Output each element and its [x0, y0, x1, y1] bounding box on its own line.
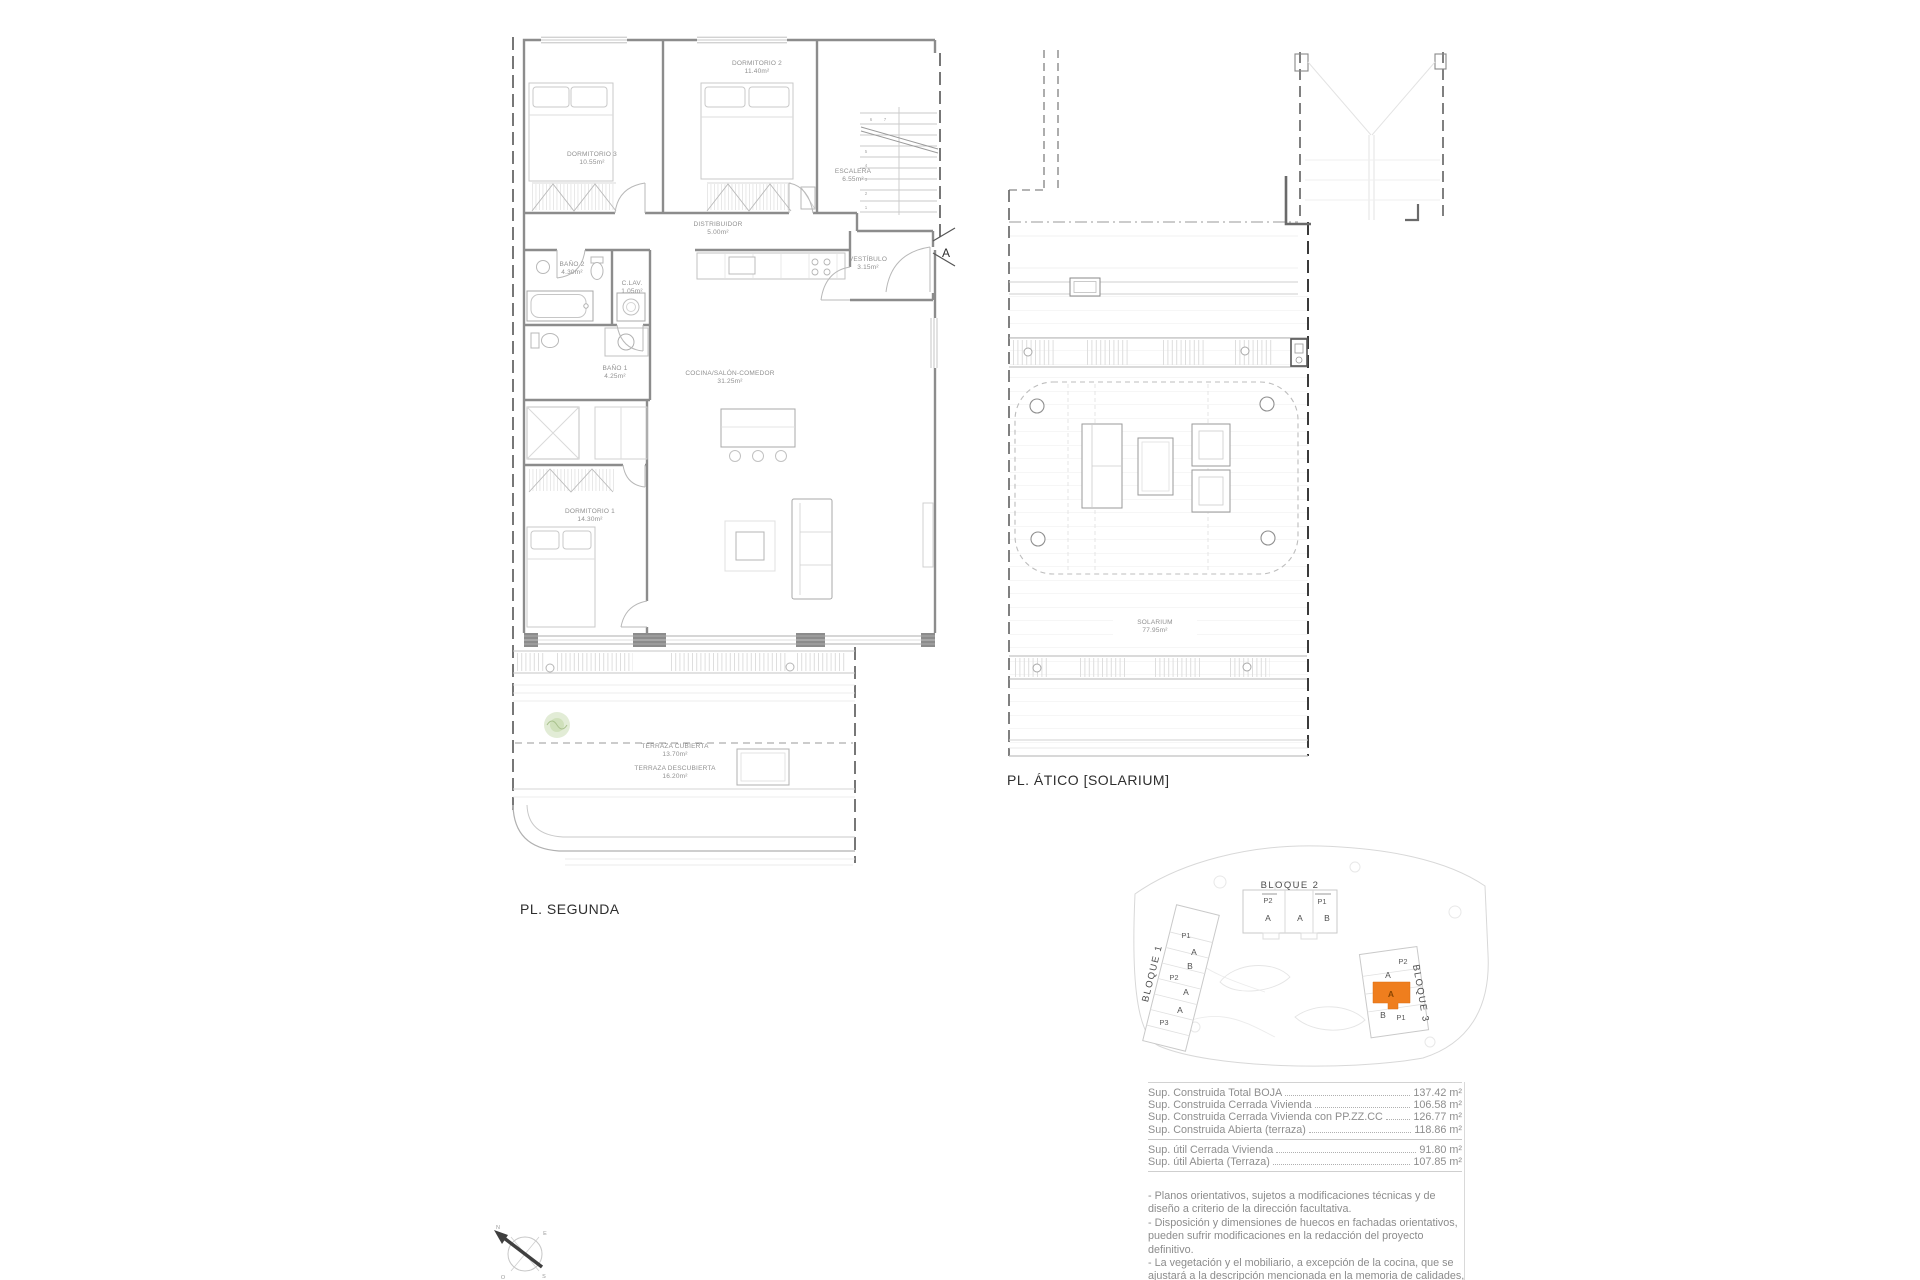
area-value: 137.42 m²: [1413, 1087, 1462, 1099]
room-area: 77.95m²: [1142, 627, 1168, 634]
bloque3-unit: P2: [1398, 957, 1407, 966]
room-label: DORMITORIO 2: [732, 60, 782, 67]
room-label: TERRAZA DESCUBIERTA: [634, 765, 716, 772]
disclaimer-notes: - Planos orientativos, sujetos a modific…: [1148, 1190, 1470, 1280]
stair-number: 7: [884, 117, 887, 122]
dot-leader: [1315, 1107, 1411, 1108]
area-value: 106.58 m²: [1413, 1099, 1462, 1111]
entrance-marker: A: [933, 228, 955, 266]
dot-leader: [1309, 1132, 1411, 1133]
table-row: Sup. Construida Cerrada Vivienda con PP.…: [1148, 1111, 1462, 1123]
area-value: 107.85 m²: [1413, 1156, 1462, 1168]
compass-icon: NE SO: [478, 1222, 568, 1280]
table-row: Sup. Construida Abierta (terraza) 118.86…: [1148, 1124, 1462, 1136]
bloque1-unit: A: [1191, 947, 1197, 957]
bloque2-label: BLOQUE 2: [1261, 880, 1320, 891]
parapet: [1009, 278, 1298, 296]
area-label: Sup. Construida Cerrada Vivienda con PP.…: [1148, 1111, 1383, 1123]
room-area: 4.25m²: [604, 373, 626, 380]
note: - Planos orientativos, sujetos a modific…: [1148, 1190, 1470, 1217]
stair-number: 2: [865, 191, 868, 196]
room-label: ESCALERA: [835, 168, 872, 175]
room-area: 3.15m²: [857, 264, 879, 271]
room-area: 16.20m²: [662, 773, 688, 780]
bloque3-unit: B: [1380, 1010, 1386, 1020]
room-area: 31.25m²: [717, 378, 743, 385]
areas-group-construida: Sup. Construida Total BOJA 137.42 m² Sup…: [1148, 1087, 1462, 1140]
room-label: DISTRIBUIDOR: [694, 221, 743, 228]
plan-segunda-drawing: 1 2 3 4 5 6 7: [505, 35, 955, 880]
area-value: 126.77 m²: [1413, 1111, 1462, 1123]
bloque1-unit: P3: [1159, 1018, 1168, 1027]
bloque2-unit: P2: [1263, 896, 1272, 905]
floor-plan-sheet: 1 2 3 4 5 6 7: [0, 0, 1920, 1280]
bloque1-unit: B: [1187, 961, 1193, 971]
dot-leader: [1276, 1152, 1416, 1153]
svg-text:N: N: [496, 1225, 500, 1231]
bloque1-unit: A: [1177, 1005, 1183, 1015]
note: - La vegetación y el mobiliario, a excep…: [1148, 1257, 1470, 1280]
plan-atico-drawing: SOLARIUM 77.95m²: [995, 40, 1455, 770]
room-label: SOLARIUM: [1137, 619, 1173, 626]
room-area: 13.70m²: [662, 751, 688, 758]
stair-number: 3: [865, 177, 868, 182]
site-bloque3: BLOQUE 3 P2 A A B P1: [1359, 947, 1431, 1038]
room-area: 5.00m²: [707, 229, 729, 236]
room-area: 10.55m²: [579, 159, 605, 166]
bloque3-unit: A: [1385, 970, 1391, 980]
area-label: Sup. Construida Total BOJA: [1148, 1087, 1282, 1099]
site-bloque1: BLOQUE 1 P1 A B P2 A A P3: [1140, 905, 1219, 1051]
area-label: Sup. Construida Cerrada Vivienda: [1148, 1099, 1312, 1111]
room-area: 14.30m²: [577, 516, 603, 523]
svg-text:E: E: [543, 1231, 547, 1237]
bloque1-unit: P1: [1181, 931, 1190, 940]
site-bloque2: BLOQUE 2 P2 P1 A A B: [1243, 880, 1337, 939]
bloque2-unit: P1: [1317, 897, 1326, 906]
table-row: Sup. útil Abierta (Terraza) 107.85 m²: [1148, 1156, 1462, 1168]
dot-leader: [1386, 1119, 1411, 1120]
room-area: 1.05m²: [621, 288, 643, 295]
room-label: COCINA/SALÓN-COMEDOR: [685, 368, 774, 377]
room-label: TERRAZA CUBIERTA: [641, 743, 709, 750]
table-row: Sup. Construida Cerrada Vivienda 106.58 …: [1148, 1099, 1462, 1111]
facade-wall: [524, 633, 935, 647]
panel-divider-line: [1464, 1082, 1465, 1280]
bloque1-unit: A: [1183, 987, 1189, 997]
room-label: DORMITORIO 3: [567, 151, 617, 158]
stair-number: 5: [865, 149, 868, 154]
table-row: Sup. útil Cerrada Vivienda 91.80 m²: [1148, 1144, 1462, 1156]
bloque2-unit: A: [1265, 913, 1271, 923]
stairs: 1 2 3 4 5 6 7: [860, 107, 938, 215]
room-label: BAÑO 2: [559, 259, 584, 268]
room-area: 4.30m²: [561, 269, 583, 276]
stair-block: [1286, 54, 1446, 224]
room-label: VESTÍBULO: [849, 254, 887, 263]
bloque3-highlighted-unit-letter: A: [1388, 989, 1394, 999]
svg-text:S: S: [542, 1274, 546, 1280]
stair-number: 1: [865, 205, 868, 210]
bloque3-unit: P1: [1396, 1013, 1405, 1022]
entrance-marker-letter: A: [942, 246, 950, 260]
stair-number: 6: [870, 117, 873, 122]
bloque1-unit: P2: [1169, 973, 1178, 982]
bloque2-unit: B: [1324, 913, 1330, 923]
room-area: 11.40m²: [745, 68, 770, 75]
area-label: Sup. útil Abierta (Terraza): [1148, 1156, 1270, 1168]
note: - Disposición y dimensiones de huecos en…: [1148, 1217, 1470, 1257]
svg-text:O: O: [501, 1275, 506, 1280]
dot-leader: [1285, 1095, 1410, 1096]
deck-planks: [1009, 296, 1308, 752]
areas-group-util: Sup. útil Cerrada Vivienda 91.80 m² Sup.…: [1148, 1144, 1462, 1172]
area-value: 91.80 m²: [1419, 1144, 1462, 1156]
bloque2-unit: A: [1297, 913, 1303, 923]
plan-atico-title: PL. ÁTICO [SOLARIUM]: [1007, 772, 1169, 788]
terrace: [513, 651, 855, 865]
room-label: DORMITORIO 1: [565, 508, 615, 515]
room-area: 6.55m²: [842, 176, 864, 183]
site-plan: BLOQUE 2 P2 P1 A A B BLOQUE 1 P1 A B P2 …: [1125, 832, 1500, 1077]
plan-segunda-title: PL. SEGUNDA: [520, 901, 620, 917]
table-row: Sup. Construida Total BOJA 137.42 m²: [1148, 1087, 1462, 1099]
room-label: C.LAV.: [622, 280, 643, 287]
area-label: Sup. Construida Abierta (terraza): [1148, 1124, 1306, 1136]
areas-table: Sup. Construida Total BOJA 137.42 m² Sup…: [1148, 1082, 1462, 1172]
room-label: BAÑO 1: [602, 363, 627, 372]
area-label: Sup. útil Cerrada Vivienda: [1148, 1144, 1273, 1156]
area-value: 118.86 m²: [1414, 1124, 1462, 1136]
dot-leader: [1273, 1164, 1411, 1165]
plant: [544, 712, 570, 738]
